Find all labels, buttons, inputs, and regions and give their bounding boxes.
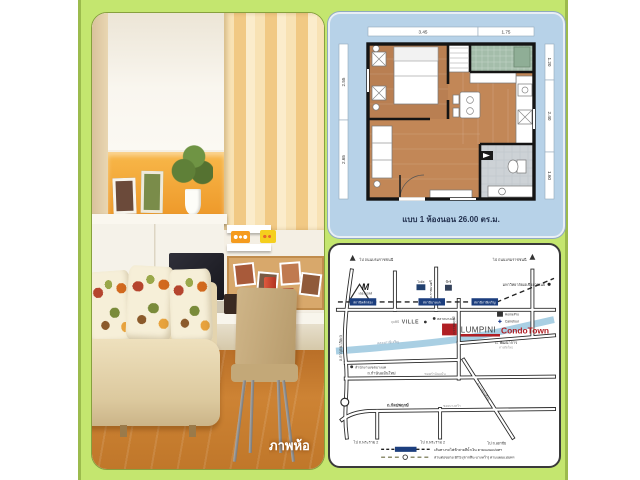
tv-console <box>430 190 472 198</box>
road-label-kanlapaphruek: ถ.กัลปพฤกษ์ <box>387 402 409 408</box>
sofa <box>91 339 220 426</box>
bigc-label: บิ๊กซี <box>445 279 451 284</box>
dim-left-2: 2.65 <box>341 155 346 164</box>
real-estate-collage: ภาพห้อ 3.45 1.75 2.55 2.65 1.20 <box>0 0 640 480</box>
bed-pillows <box>394 47 438 61</box>
road-label-kamnanmaen: ถ.กำนันแม้นใหม่ <box>367 371 396 376</box>
to-rama2-mid: ไป ถ.พระราม 2 <box>419 439 445 444</box>
kitchen-counter-top <box>470 72 516 83</box>
map-legend: เส้นทางรถไฟฟ้าสายสีน้ำเงิน ตามแผนแม่บทฯ … <box>381 447 514 460</box>
logo-condotown-text: CondoTown <box>501 325 549 335</box>
district-office-dot <box>350 365 353 368</box>
dim-left-1: 2.55 <box>341 77 346 86</box>
photo-watermark: ภาพห้อ <box>269 435 325 456</box>
legend-blueline-box <box>395 447 417 452</box>
photo-frame <box>112 178 136 214</box>
roundabout-icon <box>341 398 349 406</box>
lotus-icon <box>417 284 426 290</box>
homepro-label: HomePro <box>505 313 519 317</box>
road-label-ratchamontri: ถ.ราชมนตรี <box>428 280 433 298</box>
dim-top-1: 3.45 <box>419 30 428 35</box>
chair <box>235 288 297 367</box>
floorplan-caption: แบบ 1 ห้องนอน 26.00 ตร.ม. <box>402 214 500 224</box>
dim-right-2: 2.40 <box>547 112 552 121</box>
plant <box>171 138 213 190</box>
ville-prefix: ลุมพินี <box>391 320 400 325</box>
green-frame: ภาพห้อ 3.45 1.75 2.55 2.65 1.20 <box>78 0 568 480</box>
rail-stations: สถานีหลักสอง สถานีบางแค สถานีภาษีเจริญ <box>350 298 498 305</box>
university-label: มหาวิทยาลัยเอเชียอาคเนย์ <box>503 282 546 287</box>
photo-frame <box>140 171 163 213</box>
road-label-bangkhuntian: ถ.บางขุนเทียน <box>475 382 492 403</box>
to-road-top-left: ไป ถนนบรมราชชนนี <box>359 257 394 262</box>
district-office-label: สำนักงานเขตบางแค <box>355 365 387 369</box>
leaf-pattern-pillow <box>125 264 175 342</box>
dining-chair <box>453 108 459 117</box>
yellow-deco-block <box>260 230 276 243</box>
arrow-up-icon <box>350 255 356 261</box>
balcony-ac-unit <box>514 47 530 67</box>
chair-seat <box>231 364 298 382</box>
dim-right-3: 1.60 <box>547 171 552 180</box>
bigc-icon <box>445 285 452 291</box>
striped-wall-panel <box>224 13 324 230</box>
plan-sofa <box>372 126 392 178</box>
map-drawing: คลองภาษีเจริญ <box>330 245 559 466</box>
road-sublabel-kanlapaphruek: ซอยบางหว้า <box>443 404 461 408</box>
plant-pot <box>185 189 201 215</box>
logo-red-strip <box>461 334 500 337</box>
pinned-photo <box>298 272 321 297</box>
road-label-ratchaphruek: ถ.ราชพฤกษ์ <box>452 316 456 335</box>
dim-right-1: 1.20 <box>547 58 552 67</box>
road-sublabel-phatthanakan: ทางตัดใหม่ <box>499 346 513 350</box>
university-dot <box>548 283 551 286</box>
toilet <box>508 160 518 173</box>
arrow-up-icon <box>529 254 535 260</box>
leaf-pattern-pillow <box>168 269 212 346</box>
to-rama2-left: ไป ถ.พระราม 2 <box>353 439 379 444</box>
to-road-top-right: ไป ถนนบรมราชชนนี <box>492 257 527 262</box>
wall-shelf <box>92 214 227 224</box>
lamp <box>373 104 379 110</box>
legend-label-2: ส่วนต่อขยาย BTS (ตากสิน-บางหว้า) ตามแผนแ… <box>434 456 514 460</box>
sofa-leg <box>120 425 127 437</box>
station-label: สถานีหลักสอง <box>353 299 373 304</box>
orange-deco-block <box>231 231 250 243</box>
bath-sink <box>499 188 506 195</box>
wall-left-column <box>92 13 108 223</box>
legend-bts-circle <box>403 455 408 460</box>
station-label: สถานีบางแค <box>423 299 441 304</box>
lamp <box>373 45 379 51</box>
ville-dot <box>424 321 427 324</box>
sofa-leg <box>189 425 196 437</box>
road-label-phatthanakan: ถ. พัฒนาการ <box>495 340 517 345</box>
market-dot <box>433 317 436 320</box>
small-shelf <box>227 244 271 252</box>
road-label-kanchanaphisek: ถ.กาญจนาภิเษก <box>339 335 343 361</box>
pinned-photo <box>233 262 256 287</box>
pinned-photo <box>279 261 301 285</box>
floorplan-panel: 3.45 1.75 2.55 2.65 1.20 2.40 1.60 <box>328 12 565 238</box>
dining-chair <box>453 95 459 104</box>
to-ekkachai: ไป ถ.เอกชัย <box>486 440 506 445</box>
homepro-icon <box>497 312 503 317</box>
floorplan-drawing: 3.45 1.75 2.55 2.65 1.20 2.40 1.60 <box>330 14 563 236</box>
lotus-label: โลตัส <box>417 280 424 284</box>
location-map-panel: คลองภาษีเจริญ <box>328 243 561 468</box>
carrefour-label: Carrefour <box>505 320 520 324</box>
lamp <box>374 181 380 187</box>
interior-photo: ภาพห้อ <box>91 12 325 470</box>
ville-logo: VILLE <box>402 320 419 326</box>
dim-top-2: 1.75 <box>502 30 511 35</box>
bath-vanity <box>488 186 534 197</box>
legend-label-1: เส้นทางรถไฟฟ้าสายสีน้ำเงิน ตามแผนแม่บทฯ <box>434 447 502 452</box>
kitchen-sink <box>518 84 532 96</box>
station-label: สถานีภาษีเจริญ <box>474 299 496 304</box>
the-mall-label: เดอะมอลล์ <box>359 292 373 296</box>
carrefour-icon: ✚ <box>498 319 503 324</box>
road-sublabel-kamnanmaen: ซอยกำนันแม้น <box>424 372 446 376</box>
logo-lumpini-text: LUMPINI <box>461 325 496 334</box>
